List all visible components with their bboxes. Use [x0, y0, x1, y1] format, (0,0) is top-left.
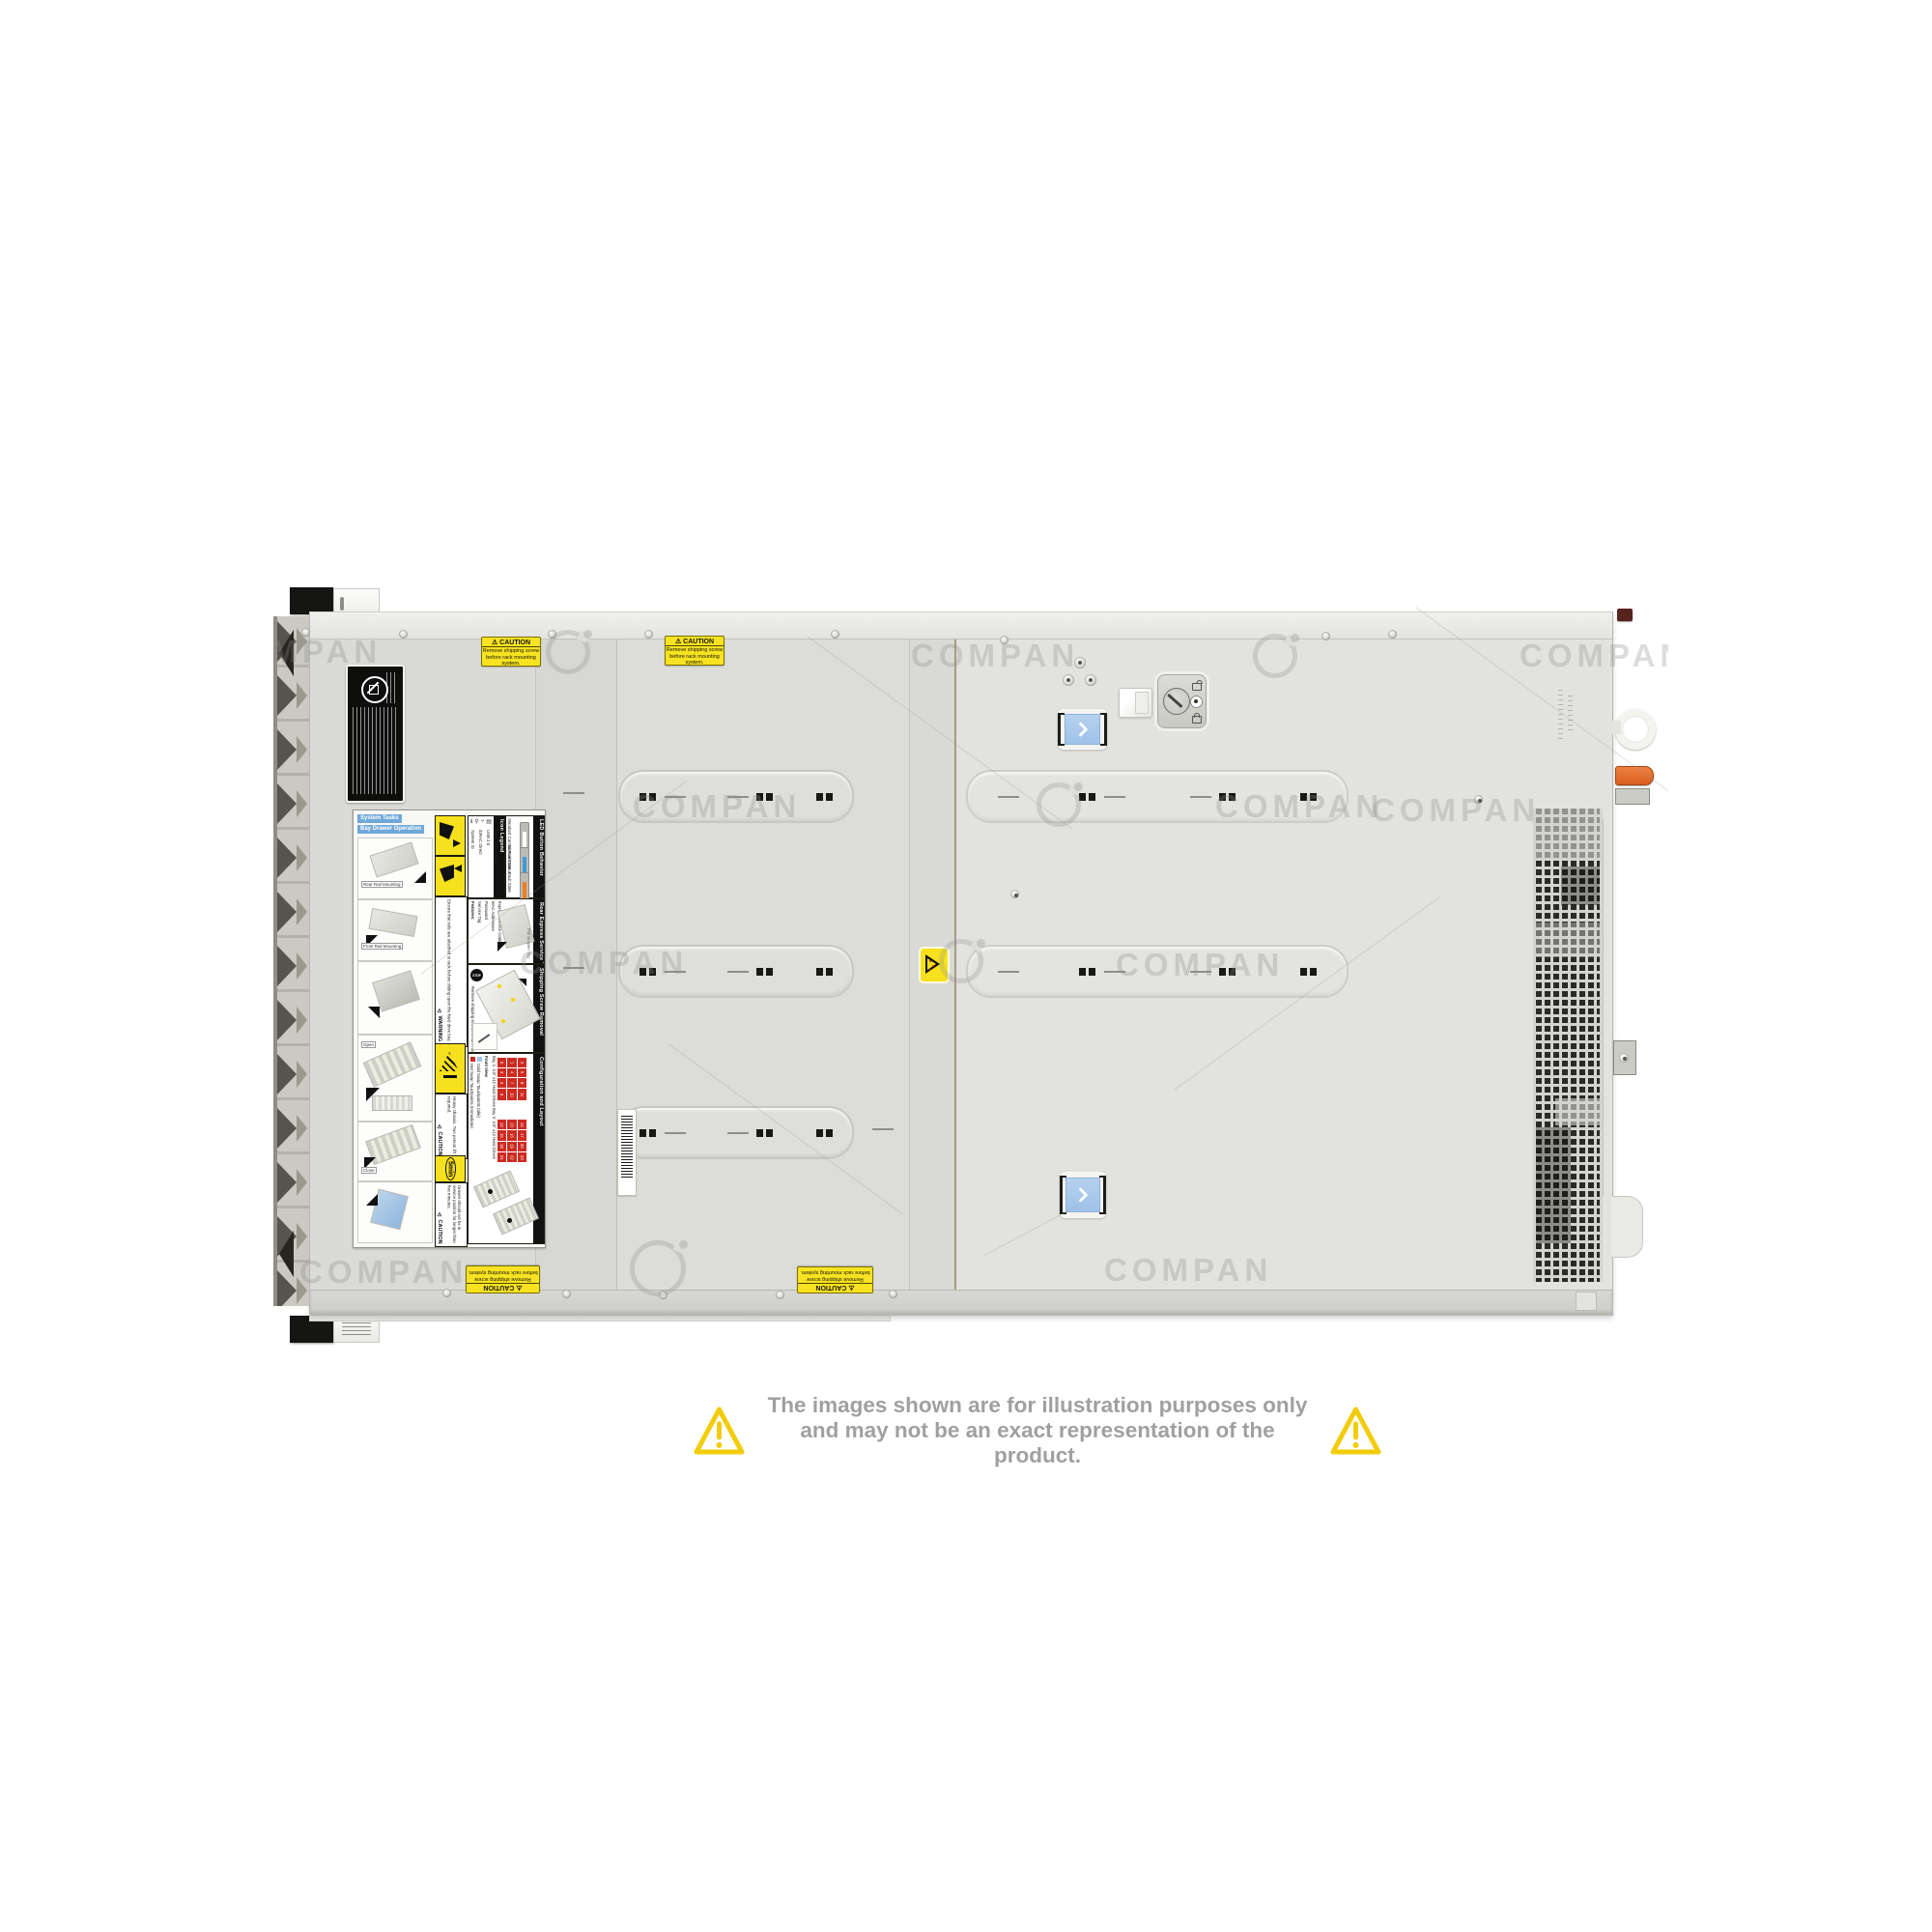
caution-sticker-bottom-right: ⚠ CAUTION Remove shipping screwbefore ra…: [797, 1266, 873, 1293]
drive-number: 16: [507, 1130, 516, 1140]
caution-heavy-box: ⚠ CAUTION Heavy chassis. Two person lift…: [435, 1094, 468, 1159]
rear-red-tab: [1617, 609, 1633, 621]
drive-number: 4: [507, 1068, 516, 1078]
handle-vents: [639, 793, 690, 801]
unlocked-icon: [1192, 683, 1202, 691]
pictogram-arrow: [454, 865, 462, 872]
rear-tag-title: Rear Express Service Tag: [533, 899, 544, 963]
hazard-dot: [929, 960, 931, 962]
bay1-label: Bay 1: 3.5" x12 Hard Drives: [492, 1056, 497, 1107]
screwdriver-icon: [478, 1034, 491, 1043]
rivet: [659, 1291, 668, 1299]
icon-legend-item: Hard Drive Activity: [494, 830, 498, 864]
barcode: [621, 1116, 633, 1178]
cover-door-seam: [1603, 819, 1604, 1196]
vent-dark-patch: [1536, 1127, 1571, 1243]
drive-number: 17: [518, 1130, 526, 1140]
caution-drawer-box: ⚠ CAUTION Drawer should not be in servic…: [435, 1182, 468, 1247]
handle-vents: [816, 1129, 833, 1137]
chevron-right-icon: [1073, 1185, 1093, 1205]
rear-tag-item: Service Tag: [477, 901, 482, 943]
stop-icon: STOP: [470, 969, 483, 981]
diagram-rail-latch: [357, 961, 433, 1035]
icon-legend-item: USB 2.0: [486, 830, 491, 864]
recess-mark: [1300, 968, 1317, 976]
rear-tag-item: MAC Addresses: [491, 901, 496, 943]
disclaimer-line2: and may not be an exact representation o…: [762, 1418, 1313, 1468]
bay2-label: Bay 2: 3.5" x12 Hard Drives: [492, 1108, 497, 1159]
system-tasks-header: System Tasks: [357, 814, 402, 823]
ring-base: [1611, 721, 1621, 734]
front-view-label: Front View: [484, 1056, 489, 1077]
vent-shade: [1536, 923, 1600, 957]
caution-title: ⚠ CAUTION: [437, 1124, 442, 1156]
drive-number: 11: [518, 1089, 526, 1100]
front-drive-latch-strip: [273, 616, 309, 1306]
caution-line2: before rack mounting system.: [669, 654, 720, 667]
cover-screw: [1010, 890, 1019, 898]
corner-plate: [1576, 1292, 1597, 1311]
caution-line1: Remove shipping screw: [474, 1276, 530, 1282]
regulatory-text-lines: [386, 672, 398, 703]
rivet: [644, 630, 653, 639]
recess-mark: [998, 796, 1019, 798]
drive-number: 0: [497, 1058, 506, 1067]
config-dot: [488, 1189, 493, 1194]
diagram-arrow: [519, 979, 526, 986]
drive-number: 22: [507, 1152, 516, 1162]
cover-lock[interactable]: [1157, 674, 1207, 728]
locked-icon: [1192, 716, 1202, 724]
rivet: [399, 630, 408, 639]
warning-triangle-icon-right: [1328, 1405, 1383, 1458]
rear-edge-bump: [1611, 1196, 1643, 1258]
front-corner-fin-bottom: [279, 1231, 294, 1277]
diagram-sketch: [369, 841, 418, 877]
caution-text: Drawer should not be in service position…: [446, 1185, 462, 1244]
diagram-caption: Close: [361, 1167, 377, 1174]
cover-recess-1: [966, 770, 1349, 823]
vent-dark-patch: [1561, 867, 1600, 905]
stop-text: STOP: [472, 974, 481, 978]
vent-shade: [1555, 1098, 1600, 1125]
diagram-rear-rail: Rear Rail Mounting: [357, 838, 433, 899]
pinch-hazard-pictogram-2: [435, 856, 466, 896]
warning-rails-box: ⚠ WARNING Ensure that rails are attached…: [435, 896, 468, 1047]
bay2-drive-grid: 121314151617181920212223: [497, 1120, 526, 1162]
handle-vents: [727, 1129, 778, 1137]
rivet: [1321, 632, 1330, 640]
drive-number: 23: [518, 1152, 526, 1162]
pictogram-shape: [440, 1052, 459, 1071]
idrac-direct-icon: ⚲: [474, 818, 478, 826]
chevron-right-icon: [1073, 720, 1093, 739]
diagram-sketch: [368, 908, 417, 937]
drive-number: 18: [497, 1142, 506, 1151]
page: { "watermark": { "text": "COMPAN" }, "ca…: [0, 0, 1932, 1932]
drive-number: 21: [497, 1152, 506, 1162]
lock-dial[interactable]: [1163, 688, 1190, 715]
recess-mark: [1079, 793, 1129, 801]
caution-line1: Remove shipping screw: [667, 647, 723, 653]
drive-number: 13: [507, 1120, 516, 1129]
drive-number: 9: [497, 1089, 506, 1100]
service-instruction-label: System Tasks Bay Drawer Operation Rear R…: [353, 810, 546, 1248]
diagram-caption: Front Rail Mounting: [361, 943, 403, 950]
handle-vents: [816, 968, 833, 976]
rivet: [889, 1290, 897, 1298]
blue-touchpoint: [1065, 1178, 1100, 1212]
hazard-dot: [932, 965, 934, 967]
led-fault-label: Fault State: [507, 872, 512, 893]
drive-number: 10: [507, 1089, 516, 1100]
drive-number: 5: [518, 1068, 526, 1078]
recessed-handle-2: [618, 945, 854, 998]
caution-line1: Remove shipping screw: [807, 1276, 863, 1282]
server-photo: ⚠ CAUTION Remove shipping screwbefore ra…: [273, 587, 1668, 1343]
handle-vents: [639, 968, 690, 976]
rivet: [831, 630, 839, 639]
cold-swap-legend: Cold Swap Touchpoints (Idle): [476, 1064, 481, 1118]
recess-mark: [1190, 968, 1240, 976]
orange-release-lever[interactable]: [1615, 766, 1654, 785]
diagram-sketch: [363, 1041, 422, 1088]
caution-title: ⚠ CAUTION: [666, 637, 724, 646]
caution-line2: before rack mounting system.: [486, 655, 536, 668]
rack-ear-top-left: [290, 587, 333, 614]
button-bracket: [1060, 1176, 1066, 1214]
drive-number: 6: [497, 1078, 506, 1088]
system-id-icon: ℹ: [470, 818, 472, 826]
diagram-caption: Rear Rail Mounting: [361, 881, 403, 888]
hdd-activity-icon: ▤: [486, 818, 492, 826]
top-panel-left-2: [536, 612, 617, 1315]
lock-keyhole: [1190, 696, 1203, 708]
rear-tag-item: Password: [484, 901, 489, 943]
crush-hazard-pictogram: [435, 1043, 466, 1094]
config-sketch: [493, 1197, 539, 1235]
config-sketch: [473, 1170, 520, 1207]
rivet: [776, 1291, 784, 1299]
latch-slide-tab[interactable]: [1119, 688, 1152, 718]
diagram-open-drawer: Open: [357, 1035, 433, 1122]
hazard-triangle-sticker: [921, 949, 948, 981]
drive-number: 1: [507, 1058, 516, 1067]
chassis-top-edge: [310, 612, 1612, 639]
hot-swap-legend: Hot Swap Touchpoints (Immediate): [469, 1064, 474, 1128]
rear-service-tag-section: Rear Express Service Tag Features: Servi…: [468, 898, 545, 964]
recess-mark: [1300, 793, 1317, 801]
rear-latch-middle: [1613, 1040, 1636, 1075]
pinch-hazard-pictogram-1: [435, 815, 466, 856]
drive-number: 3: [497, 1068, 506, 1078]
icon-legend-item: System ID: [470, 830, 475, 864]
screwdriver-inset: [472, 1023, 497, 1050]
drive-number: 20: [518, 1142, 526, 1151]
diagram-arrow: [414, 871, 426, 883]
handle-vents: [639, 1129, 690, 1137]
hazard-dot: [929, 969, 931, 971]
drive-number: 14: [518, 1120, 526, 1129]
button-bracket: [1058, 713, 1065, 746]
rear-latch-top: [1615, 788, 1650, 805]
screw-dot: [497, 984, 501, 988]
caution-sticker-top-left: ⚠ CAUTION Remove shipping screwbefore ra…: [481, 637, 541, 667]
embossed-marks: [1568, 696, 1573, 734]
embossed-marks: [1558, 690, 1563, 740]
config-dot: [507, 1218, 512, 1223]
five-min-pictogram: 5min: [435, 1155, 466, 1182]
led-normal-label: Normal State: [507, 845, 512, 869]
handle-vents: [816, 793, 833, 801]
rear-tag-features: Features:: [470, 901, 475, 920]
rear-ring-handle[interactable]: [1615, 709, 1656, 750]
rivet: [301, 628, 310, 637]
barcode-sticker: [617, 1109, 637, 1196]
warning-text: Ensure that rails are attached to rack b…: [446, 899, 451, 1041]
diagram-close-drawer: Close: [357, 1122, 433, 1181]
usb-icon: ⑂: [481, 818, 485, 826]
caution-text: Heavy chassis. Two person lift required.: [446, 1096, 456, 1156]
diagram-bezel: [357, 1181, 433, 1243]
diagram-caption: Open: [361, 1041, 376, 1048]
bay1-drive-grid: 01234567891011: [497, 1058, 526, 1100]
cover-release-button-1[interactable]: [1058, 709, 1107, 750]
zigzag-pattern: [273, 616, 309, 1306]
diagram-sketch: [372, 1095, 412, 1111]
rivet: [442, 1289, 451, 1297]
warning-triangle-icon-left: [692, 1405, 747, 1458]
bay-drawer-header: Bay Drawer Operation: [357, 825, 424, 834]
caution-title: ⚠ CAUTION: [467, 1283, 539, 1293]
disclaimer-line1: The images shown are for illustration pu…: [762, 1393, 1313, 1418]
regulatory-icon: [361, 676, 388, 703]
latch-screw: [1619, 1053, 1629, 1063]
cover-screw: [1085, 674, 1096, 686]
panel-mark: [563, 967, 584, 969]
cover-screw: [1063, 674, 1074, 686]
drive-number: 15: [497, 1130, 506, 1140]
shipping-screw-section: Shipping Screw Removal STOP Remove shipp…: [468, 964, 545, 1053]
recess-mark: [998, 971, 1019, 973]
diagram-arrow: [366, 1194, 378, 1206]
cover-recess-2: [966, 945, 1349, 998]
recessed-handle-1: [618, 770, 854, 823]
button-bracket: [1100, 713, 1107, 746]
screw-dot: [511, 998, 515, 1002]
drive-number: 19: [507, 1142, 516, 1151]
rivet: [1388, 630, 1397, 639]
diagram-arrow: [368, 1007, 380, 1018]
configuration-layout-section: Configuration and Layout Hot Swap Touchp…: [468, 1053, 545, 1244]
screw-dot: [501, 1019, 505, 1023]
recess-mark: [1190, 793, 1240, 801]
caution-sticker-bottom-left: ⚠ CAUTION Remove shipping screwbefore ra…: [466, 1265, 540, 1293]
pictogram-arrow: [453, 839, 461, 847]
led-behavior-title: LED Button Behavior: [533, 816, 544, 897]
caution-line1: Remove shipping screw: [483, 648, 539, 654]
diagram-front-rail: Front Rail Mounting: [357, 899, 433, 961]
cold-swap-legend-swatch: [477, 1057, 482, 1062]
button-bracket: [1099, 1176, 1106, 1214]
handle-vents: [727, 968, 778, 976]
blue-touchpoint: [1065, 714, 1100, 745]
drive-number: 12: [497, 1120, 506, 1129]
cover-screw: [1474, 795, 1483, 804]
disclaimer: The images shown are for illustration pu…: [692, 1393, 1383, 1468]
caution-line2: before rack mounting system.: [800, 1270, 869, 1276]
front-corner-fin-top: [279, 630, 294, 676]
caution-line2: before rack mounting system.: [468, 1270, 537, 1276]
regulatory-text-lines: [353, 707, 397, 794]
pictogram-bar: [443, 1075, 457, 1078]
rivet: [562, 1290, 571, 1298]
pictogram-shape: [440, 865, 454, 882]
pictogram-shape: [440, 822, 454, 839]
icon-legend-section: Icon Legend ℹ ⚲ ⑂ ▤ System ID iDRAC Dire…: [468, 815, 505, 898]
drive-number: 2: [518, 1058, 526, 1067]
caution-title: ⚠ CAUTION: [798, 1283, 872, 1293]
drive-number: 8: [518, 1078, 526, 1088]
cover-screw: [1074, 657, 1086, 668]
icon-legend-item: iDRAC Direct: [478, 830, 483, 864]
regulatory-label: [346, 665, 405, 803]
recessed-handle-3: [618, 1106, 854, 1159]
bracket-slot: [340, 597, 344, 611]
drive-number: 7: [507, 1078, 516, 1088]
hot-swap-legend-swatch: [470, 1057, 475, 1062]
panel-mark: [563, 792, 584, 794]
warning-title: ⚠ WARNING: [437, 1009, 442, 1041]
caution-title: ⚠ CAUTION: [437, 1212, 442, 1244]
rivet: [548, 630, 556, 639]
led-behavior-section: LED Button Behavior Standard Control Pan…: [505, 815, 545, 898]
panel-mark: [872, 1128, 894, 1130]
vent-shade: [1536, 809, 1600, 859]
recess-mark: [1079, 968, 1129, 976]
vent-perforation-grid: [1533, 809, 1603, 1282]
handle-vents: [727, 793, 778, 801]
rivet: [1000, 636, 1009, 644]
caution-sticker-top-right: ⚠ CAUTION Remove shipping screwbefore ra…: [665, 636, 724, 666]
caution-title: ⚠ CAUTION: [482, 638, 540, 647]
rear-tag-pull: Pull to open Tag: [526, 928, 531, 958]
five-min-text: 5min: [445, 1157, 456, 1180]
diagram-arrow: [497, 942, 507, 952]
